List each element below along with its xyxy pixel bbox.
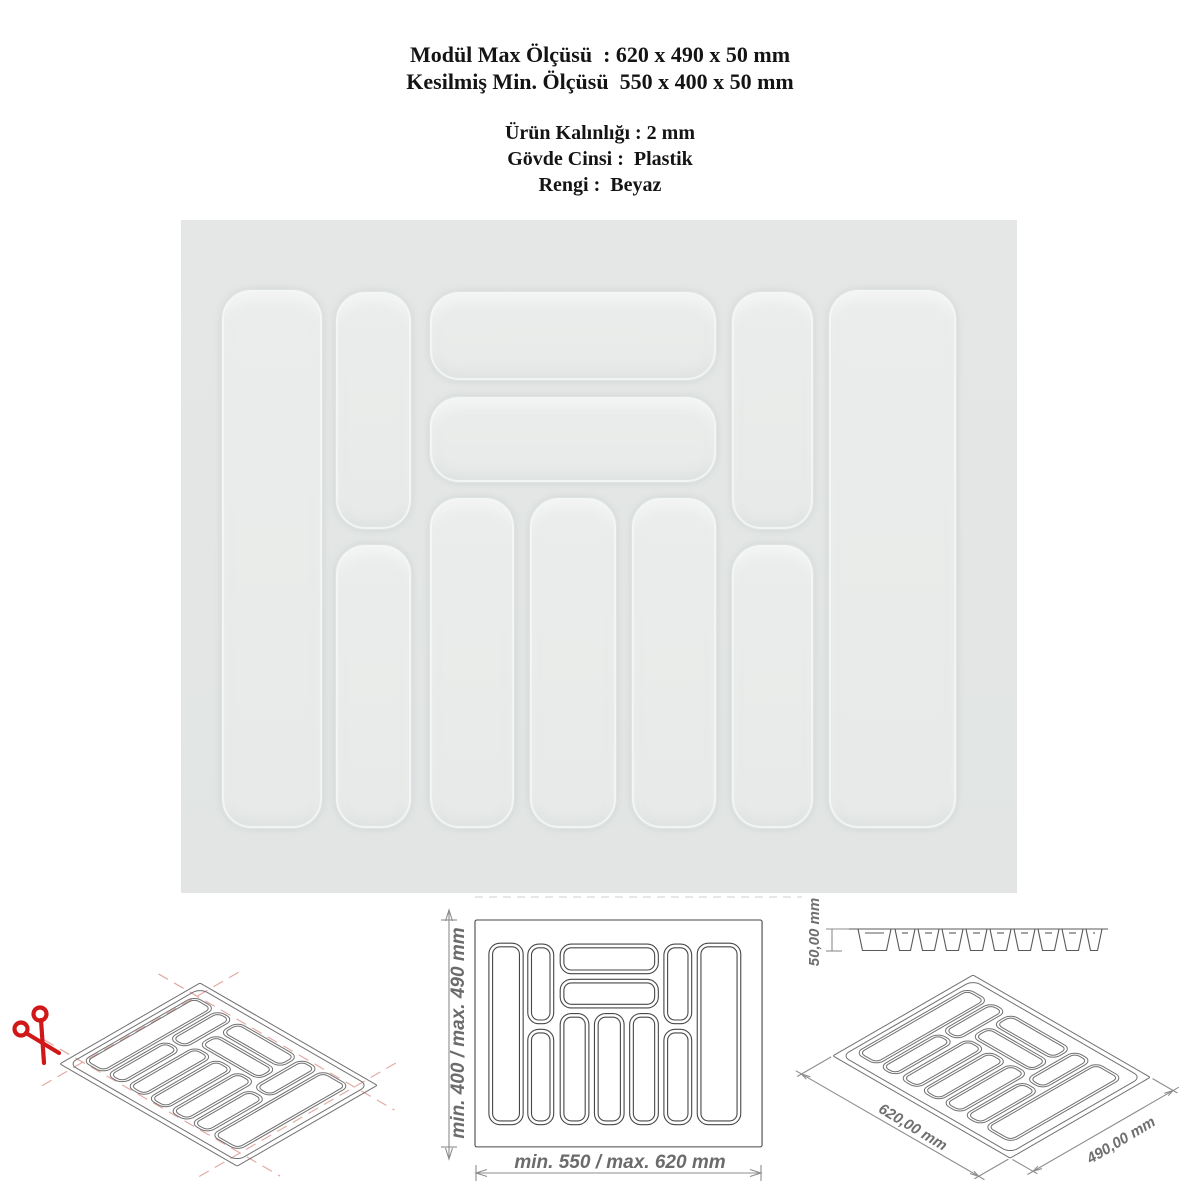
tray-compartment <box>828 289 957 829</box>
tray-compartment <box>731 291 814 529</box>
iso-width-dimension-label: 620,00 mm <box>875 1100 950 1154</box>
spec-line-cut-min: Kesilmiş Min. Ölçüsü 550 x 400 x 50 mm <box>0 68 1200 95</box>
height-dimension-label: min. 400 / max. 490 mm <box>448 927 469 1138</box>
tray-compartment <box>529 497 617 829</box>
iso-right-tray-lines <box>791 968 1183 1194</box>
spec-line-thickness: Ürün Kalınlığı : 2 mm <box>0 120 1200 146</box>
profile-section-lines <box>843 929 1108 951</box>
depth-dimension-line <box>826 929 849 951</box>
tray-compartment <box>731 544 814 829</box>
spec-line-color: Rengi : Beyaz <box>0 172 1200 198</box>
tray-compartment <box>335 544 412 829</box>
tray-compartment <box>335 291 412 529</box>
tray-compartment <box>631 497 717 829</box>
tray-compartment <box>221 289 323 829</box>
page: Modül Max Ölçüsü : 620 x 490 x 50 mm Kes… <box>0 0 1200 1200</box>
top-view-tray-lines <box>475 920 762 1147</box>
tray-compartment <box>429 497 515 829</box>
tray-compartment <box>429 396 717 483</box>
top-view-drawing: min. 400 / max. 490 mm min. 550 / max. 6… <box>410 880 810 1200</box>
isometric-drawing-left <box>0 940 420 1200</box>
product-photo <box>181 220 1017 893</box>
isometric-drawing-right: 620,00 mm 490,00 mm <box>790 955 1200 1200</box>
spec-header: Modül Max Ölçüsü : 620 x 490 x 50 mm Kes… <box>0 0 1200 198</box>
tray-compartment <box>429 291 717 381</box>
spec-line-module-max: Modül Max Ölçüsü : 620 x 490 x 50 mm <box>0 41 1200 68</box>
iso-depth-dimension-label: 490,00 mm <box>1083 1113 1158 1168</box>
scissors-icon <box>15 1008 60 1064</box>
spec-line-body-material: Gövde Cinsi : Plastik <box>0 146 1200 172</box>
width-dimension-label: min. 550 / max. 620 mm <box>514 1152 725 1173</box>
iso-left-tray-lines <box>3 950 436 1200</box>
